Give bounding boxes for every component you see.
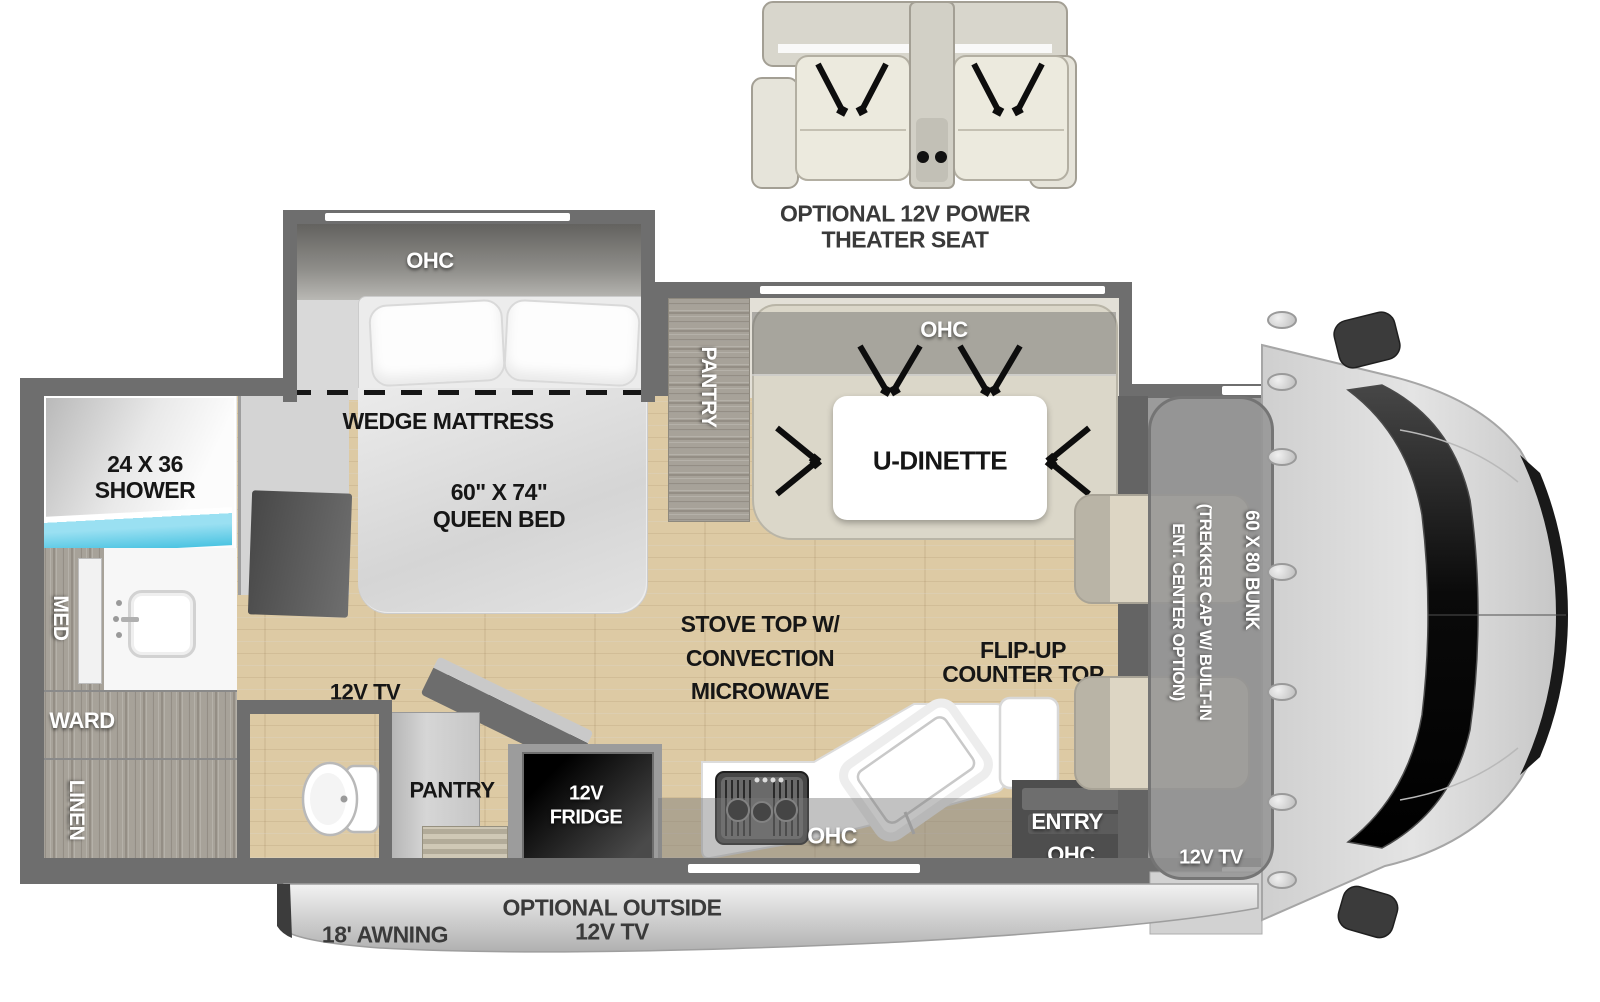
trekker-cap-label-line2: ENT. CENTER OPTION) [1168,523,1188,701]
bath-sink-icon [128,590,196,658]
bunk-size-label: 60 X 80 BUNK [1240,510,1262,630]
theater-seat-caption-line1: OPTIONAL 12V POWER [780,201,1030,228]
stove-label-line3: MICROWAVE [691,679,829,703]
bed-slide-wall [641,210,655,402]
faucet-dot [116,632,122,638]
window-marker [760,286,1105,294]
entry-label: ENTRY [1031,809,1102,835]
stove-label-line1: STOVE TOP W/ [681,612,840,636]
faucet-dot [113,616,119,622]
med-label: MED [48,595,72,640]
fridge-label-line2: FRIDGE [550,807,623,830]
faucet-icon [121,617,139,622]
front-tv-label: 12V TV [1179,847,1243,870]
rivet-icon [1267,563,1297,581]
fridge-label-line1: 12V [569,783,603,806]
pillow [503,299,641,388]
theater-seat-caption-line2: THEATER SEAT [822,227,989,254]
med-cabinet-door [78,558,102,684]
shower-size-label: 24 X 36 [107,452,183,476]
rear-wall [20,378,44,884]
rivet-icon [1267,311,1297,329]
outside-tv-label-line2: 12V TV [575,919,649,946]
rivet-icon [1267,683,1297,701]
wedge-mattress-dashed-line [290,390,652,395]
bedroom-tv-panel [248,490,352,617]
faucet-dot [116,600,122,606]
rivet-icon [1267,373,1297,391]
toilet-room-wall [237,700,250,858]
kitchen-pantry-label: PANTRY [410,778,495,801]
wedge-mattress-label: WEDGE MATTRESS [342,409,553,433]
trekker-cap-label-line1: (TREKKER CAP W/ BUILT-IN [1195,504,1215,721]
rv-floorplan: OPTIONAL 12V POWER THEATER SEAT 24 X 36 … [0,0,1600,1002]
window-marker [325,213,570,221]
toilet-icon [295,748,390,848]
bed-size-label: 60" X 74" [451,480,548,504]
stove-label-line2: CONVECTION [686,646,834,670]
cabinet-steps [422,826,508,860]
bedroom-ohc-label: OHC [406,248,453,274]
bed-type-label: QUEEN BED [433,507,565,531]
shower-label: SHOWER [95,478,196,502]
rivet-icon [1267,448,1297,466]
flip-up-label-line1: FLIP-UP [980,638,1066,662]
side-mirror-icon [1335,883,1401,941]
toilet-room-wall [237,700,392,714]
bedroom-overhead-cabinet [297,224,641,300]
side-mirror-icon [1331,309,1403,371]
flip-up-counter [1000,698,1058,788]
dinette-slide-wall [655,282,668,396]
ward-label: WARD [49,708,114,734]
pillow [368,299,506,388]
dinette-pantry-label: PANTRY [696,347,720,428]
top-wall-left [20,378,292,396]
awning-label: 18' AWNING [322,922,448,949]
bed-slide-wall [283,210,297,402]
linen-label: LINEN [64,780,88,841]
seatbelt-icon [740,330,1140,510]
outside-tv-label-line1: OPTIONAL OUTSIDE [502,895,721,922]
rivet-icon [1267,793,1297,811]
kitchen-ohc-label: OHC [807,823,857,850]
theater-seat-icon [745,0,1085,198]
